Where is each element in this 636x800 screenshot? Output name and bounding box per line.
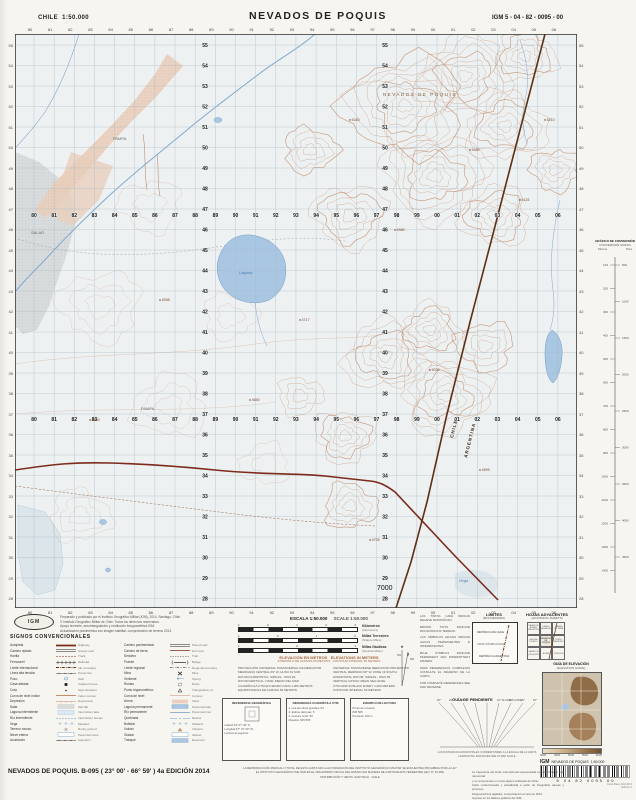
edge-northing: 52	[579, 104, 588, 109]
grid-label-northing: 37	[382, 412, 388, 418]
edge-easting: 01	[447, 27, 459, 32]
legend-label-en: Power line	[78, 671, 116, 675]
edge-easting: 95	[326, 27, 338, 32]
legend-label-es: Terreno rocoso	[10, 727, 54, 731]
barcode-scale: 1:50.000	[591, 760, 605, 765]
legend-symbol-well	[56, 676, 76, 681]
grid-label-northing: 36	[382, 432, 388, 438]
grid-label-northing: 49	[202, 166, 208, 172]
edge-northing: 35	[4, 453, 13, 458]
grid-label-easting: 85	[132, 417, 138, 423]
conversion-left-value: 300	[603, 310, 608, 314]
grid-label-easting: 06	[555, 213, 561, 219]
grid-label-easting: 90	[233, 213, 239, 219]
grid-label-easting: 96	[354, 417, 360, 423]
edge-northing: 44	[579, 268, 588, 273]
legend-symbol-rail	[56, 660, 76, 665]
legend-label-es: Depresión	[10, 699, 54, 703]
grid-label-northing: 32	[202, 514, 208, 520]
utm-box-line: Precisión 100 m	[353, 714, 407, 718]
edge-northing: 46	[4, 227, 13, 232]
pond-3	[106, 568, 111, 572]
grid-label-northing: 37	[202, 412, 208, 418]
edge-easting: 88	[185, 610, 197, 615]
scale-bar	[238, 648, 358, 653]
grid-label-northing: 43	[202, 289, 208, 295]
conversion-right-value: 1500	[622, 336, 629, 340]
igm-logo: IGM	[14, 614, 54, 630]
legend-symbol-contour	[170, 693, 190, 698]
conversion-right-value: 4500	[622, 555, 629, 559]
conversion-left-value: 700	[603, 404, 608, 408]
full-grid-label: 7000	[377, 585, 393, 592]
scale-title-en: SCALE 1:50.000	[334, 616, 368, 621]
scale-tick: 1	[238, 634, 240, 638]
legend-label-es: Ferrocarril	[10, 660, 54, 664]
legend-symbol-queb	[170, 716, 190, 721]
grid-label-easting: 05	[535, 213, 541, 219]
legend-symbol-road1	[170, 643, 190, 648]
legend-symbol-tri	[170, 688, 190, 693]
edge-northing: 28	[579, 596, 588, 601]
legend-symbol-bound2	[170, 665, 190, 670]
hojas-title-block: HOJAS ADYACENTES (ADJOINING SHEETS)	[522, 612, 572, 621]
grid-label-easting: 87	[172, 213, 178, 219]
legend-symbol-track	[170, 648, 190, 653]
spot-height: 5210	[547, 118, 555, 122]
grid-label-northing: 55	[382, 43, 388, 49]
grid-label-easting: 02	[475, 417, 481, 423]
legend-label-es: Acueducto	[10, 738, 54, 742]
scale-tick: 1	[354, 644, 356, 648]
legend-label-es: Límite regional	[124, 666, 168, 670]
edge-easting: 93	[286, 27, 298, 32]
sheet-code: IGM 5 - 04 - 82 - 0095 - 00	[492, 15, 563, 22]
edge-easting: 97	[367, 610, 379, 615]
declination-nm: NM	[410, 657, 414, 661]
edge-northing: 51	[4, 125, 13, 130]
grid-label-northing: 35	[202, 453, 208, 459]
slope-note: HORIZONTAL DISTANCES ARE AT MAP SCALE	[428, 755, 546, 759]
elevation-guide-thumbnail	[542, 672, 602, 746]
legend-label-es: Puente	[124, 660, 168, 664]
grid-label-easting: 93	[293, 417, 299, 423]
conversion-right-value: 1000	[622, 300, 629, 304]
utm-box-line: Lectura al segundo	[225, 731, 279, 735]
slope-label: 10°	[497, 698, 501, 702]
grid-label-northing: 45	[202, 248, 208, 254]
spot-height: 5340	[352, 118, 360, 122]
edge-easting: 84	[105, 610, 117, 615]
legend-symbol-sand	[170, 699, 190, 704]
footer-right-text: La trayectoria del límite internacional …	[472, 770, 564, 800]
edge-easting: 94	[306, 27, 318, 32]
legend-label-es: Cota	[10, 688, 54, 692]
elevation-bar-label: 4000	[540, 753, 546, 757]
footer-title: NEVADOS DE POQUIS. B-095 ( 23° 00' - 66°…	[8, 768, 209, 775]
utm-box-title: REFERENCIA CUADRÍCULA UTM	[289, 701, 343, 705]
grid-label-easting: 92	[273, 417, 279, 423]
grid-label-northing: 32	[382, 514, 388, 520]
scale-bar-label-en: (Nautical Miles)	[362, 649, 387, 653]
grid-label-northing: 40	[202, 350, 208, 356]
edge-northing: 28	[4, 596, 13, 601]
grid-label-easting: 04	[515, 213, 521, 219]
legend-label-es: Curva de nivel	[124, 694, 168, 698]
conversion-right-value: 2500	[622, 409, 629, 413]
edge-easting: 89	[205, 27, 217, 32]
legend-label-es: Salar	[10, 705, 54, 709]
marginal-note-line: BROWN TINTS INDICATE MOUNTAINOUS TERRAIN…	[420, 625, 470, 634]
legend-symbol-marsh	[56, 721, 76, 726]
limites-box: REPÚBLICA DE CHILE LÍMITE INTERNACIONAL …	[472, 622, 518, 664]
conversion-graph: GRÁFICO DE CONVERSIÓN CONVERSION GRAPH M…	[594, 240, 636, 604]
datum-note: EQUIDISTANCIA DE CURVAS 50 METROS	[238, 688, 325, 693]
elevation-bar-labels: 40004500500055006000	[540, 753, 602, 757]
grid-label-northing: 31	[382, 535, 388, 541]
edge-northing: 55	[4, 43, 13, 48]
edge-northing: 49	[579, 166, 588, 171]
legend-label-es: Quebrada	[124, 716, 168, 720]
conversion-right-value: 3000	[622, 446, 629, 450]
scale-tick: 0	[296, 644, 298, 648]
legend-label-es: Tranque	[124, 738, 168, 742]
legend-label-en: Trail	[192, 654, 230, 658]
grid-label-northing: 55	[202, 43, 208, 49]
utm-sample-diagram	[242, 706, 262, 722]
scale-tick: 1	[238, 644, 240, 648]
grid-label-northing: 28	[382, 596, 388, 602]
edge-easting: 97	[367, 27, 379, 32]
edge-northing: 31	[4, 535, 13, 540]
grid-label-easting: 86	[152, 213, 158, 219]
conversion-left-value: 800	[603, 428, 608, 432]
legend-label-es: Río permanente	[124, 710, 168, 714]
legend-label-es: Punto trigonométrico	[124, 688, 168, 692]
grid-label-easting: 02	[475, 213, 481, 219]
edge-northing: 49	[4, 166, 13, 171]
scale-bar-label: Millas Náuticas(Nautical Miles)	[362, 645, 387, 653]
limites-label: LÍMITE INTERNACIONAL	[477, 643, 505, 646]
grid-label-northing: 51	[382, 125, 388, 131]
place-label: SALAR	[31, 230, 44, 235]
edge-northing: 38	[579, 391, 588, 396]
legend-label-en: Track	[78, 654, 116, 658]
edge-easting: 98	[387, 27, 399, 32]
place-label: PAMPA	[113, 136, 127, 141]
interval-es: INTERVALO DE CURVAS 50 METROS	[278, 659, 331, 663]
legend-symbol-salar	[56, 704, 76, 709]
legend-symbol-road2	[56, 643, 76, 648]
grid-label-northing: 50	[202, 145, 208, 151]
edge-northing: 33	[579, 494, 588, 499]
elev-guide-title-block: GUÍA DE ELEVACIÓN (ELEVATION GUIDE)	[538, 662, 604, 670]
grid-label-northing: 42	[202, 309, 208, 315]
edge-easting: 82	[64, 610, 76, 615]
legend-symbol-lakeI	[56, 710, 76, 715]
scale-bar-col: 101	[238, 644, 358, 653]
grid-label-northing: 30	[382, 555, 388, 561]
grid-label-easting: 80	[31, 213, 37, 219]
utm-box: EJEMPLO DE LECTURAPunto de muestra845 50…	[350, 698, 409, 761]
grid-label-easting: 00	[434, 213, 440, 219]
legend-symbol-house	[56, 682, 76, 687]
legend-label-en: Dirt road	[192, 649, 230, 653]
grid-label-easting: 91	[253, 213, 259, 219]
edge-northing: 48	[4, 186, 13, 191]
grid-label-easting: 05	[535, 417, 541, 423]
spot-height: 4705	[372, 538, 380, 542]
slope-label: 30°	[449, 698, 453, 702]
legend-label-en: Perennial snow	[78, 733, 116, 737]
marginal-note-line: LAS TINTAS CAFÉ INDICAN RELIEVE MONTAÑOS…	[420, 614, 470, 623]
place-label: PAMPA	[141, 406, 155, 411]
grid-label-easting: 84	[112, 417, 118, 423]
legend-symbol-volc	[170, 727, 190, 732]
edge-easting: 92	[266, 27, 278, 32]
scale-tick: 0	[277, 634, 279, 638]
legend-label-en: Gravel road	[78, 649, 116, 653]
scale-bar	[238, 638, 358, 643]
conversion-left-value: 500	[603, 357, 608, 361]
grid-label-northing: 31	[202, 535, 208, 541]
map-canvas: CHILE ARGENTINA 808182838485868788899091…	[15, 34, 577, 608]
grid-label-northing: 54	[382, 63, 388, 69]
grid-label-northing: 46	[382, 227, 388, 233]
edge-northing: 48	[579, 186, 588, 191]
legend-label-es: Bofedal	[124, 722, 168, 726]
declination-diagram: ★ NG NM	[390, 642, 414, 692]
edge-northing: 43	[579, 289, 588, 294]
place-label: Laguna	[239, 270, 253, 275]
conversion-left-value: 1100	[602, 498, 609, 502]
edge-northing: 38	[4, 391, 13, 396]
legend-label-en: Index contour	[78, 694, 116, 698]
grid-label-northing: 44	[382, 268, 388, 274]
grid-label-easting: 96	[354, 213, 360, 219]
limites-subtitle: (BOUNDARIES)	[468, 617, 520, 621]
legend-label-es: Mina	[124, 671, 168, 675]
declination-ng: NG	[397, 653, 401, 657]
edge-northing: 33	[4, 494, 13, 499]
footer-right-line: Carta confeccionada y actualizada a part…	[472, 783, 564, 792]
legend-symbol-lake	[170, 704, 190, 709]
grid-label-northing: 52	[382, 104, 388, 110]
legend-label-en: Regional boundary	[192, 666, 230, 670]
grid-label-easting: 99	[414, 417, 420, 423]
grid-label-easting: 95	[333, 417, 339, 423]
credit-line: Actualización planimétrica con imagen sa…	[60, 629, 218, 634]
grid-label-northing: 29	[382, 576, 388, 582]
scale-tick: 0	[267, 623, 269, 627]
scale-bar-row: 10123Kilómetros(Kilometers)	[238, 623, 420, 632]
legend-label-es: Glaciar	[124, 733, 168, 737]
slope-label: 10°	[473, 698, 477, 702]
grid-label-easting: 90	[233, 417, 239, 423]
edge-northing: 50	[4, 145, 13, 150]
legend-symbol-contourI	[56, 693, 76, 698]
utm-box-line: Muestra: 845 505	[289, 718, 343, 722]
hojas-subtitle: (ADJOINING SHEETS)	[522, 617, 572, 621]
hojas-diagonal	[527, 622, 565, 660]
grid-label-easting: 06	[555, 417, 561, 423]
grid-label-northing: 34	[202, 473, 208, 479]
grid-label-northing: 33	[202, 494, 208, 500]
scale-tick: 2	[325, 623, 327, 627]
edge-easting: 91	[246, 27, 258, 32]
conversion-left-value: 200	[603, 287, 608, 291]
scale-tick: 3	[354, 623, 356, 627]
grid-label-northing: 51	[202, 125, 208, 131]
conversion-left-value: 1200	[601, 522, 608, 526]
legend-label-en: Paved road	[192, 643, 230, 647]
marginal-note-line: LOS SÍMBOLOS AZULES INDICAN AGUAS PERMAN…	[420, 635, 470, 648]
edge-northing: 36	[4, 432, 13, 437]
slope-label: 20°	[461, 698, 465, 702]
grid-label-northing: 48	[382, 186, 388, 192]
legend-label-en: Aqueduct	[78, 738, 116, 742]
scale-title-es: ESCALA 1:50.000	[290, 616, 327, 621]
legend-symbol-snow	[56, 732, 76, 737]
grid-label-easting: 98	[394, 213, 400, 219]
legend-symbol-snow	[170, 732, 190, 737]
barcode-name: NEVADOS DE POQUIS	[551, 760, 588, 765]
edge-easting: 95	[326, 610, 338, 615]
edge-easting: 87	[165, 27, 177, 32]
legend-label-en: Triangulation pt.	[192, 688, 230, 692]
legend-label-en: Rocky ground	[78, 727, 116, 731]
edge-northing: 34	[579, 473, 588, 478]
edge-easting: 96	[346, 27, 358, 32]
edge-easting: 99	[407, 610, 419, 615]
edge-northing: 39	[579, 371, 588, 376]
slope-label: 5°	[486, 698, 489, 702]
grid-label-northing: 30	[202, 555, 208, 561]
grid-label-northing: 48	[202, 186, 208, 192]
edge-northing: 42	[4, 309, 13, 314]
legend-symbol-power	[56, 738, 76, 743]
grid-label-easting: 94	[313, 213, 319, 219]
utm-box: REFERENCIA GEOGRÁFICALatitud 23° 07' 30"…	[222, 698, 281, 761]
grid-label-northing: 53	[202, 84, 208, 90]
scale-bar-col: 10123	[238, 623, 358, 632]
legend-symbol-power	[56, 671, 76, 676]
legend-title: SIGNOS CONVENCIONALES	[10, 634, 224, 641]
scale-bar-label-en: (Kilometers)	[362, 628, 380, 632]
spot-height: 4598	[162, 298, 170, 302]
credits-block: Preparado y publicado por el Instituto G…	[60, 615, 218, 634]
place-label: Vega	[459, 578, 469, 583]
barcode-org: IGM	[540, 759, 549, 765]
elevation-bar-label: 5000	[568, 753, 574, 757]
edge-easting: 03	[487, 27, 499, 32]
edge-northing: 32	[579, 514, 588, 519]
grid-label-northing: 38	[202, 391, 208, 397]
grid-label-northing: 34	[382, 473, 388, 479]
legend-label-es: Huella	[10, 654, 54, 658]
edge-easting: 88	[185, 27, 197, 32]
edge-northing: 42	[579, 309, 588, 314]
edge-northing: 45	[579, 248, 588, 253]
conversion-right-value: 4000	[622, 519, 629, 523]
edge-easting: 83	[84, 610, 96, 615]
igm-logo-text: IGM	[28, 619, 40, 625]
grid-label-easting: 94	[313, 417, 319, 423]
footer-center-text: LA REPRODUCCIÓN PARCIAL O TOTAL DE ESTA …	[232, 766, 468, 779]
conversion-left-value: 1300	[601, 545, 608, 549]
edge-easting: 80	[24, 27, 36, 32]
grid-label-northing: 39	[202, 371, 208, 377]
legend-symbol-bridge	[170, 660, 190, 665]
scale-bar-label: Millas Terrestres(Statute Miles)	[362, 634, 389, 642]
legend-label-en: Well	[78, 677, 116, 681]
spot-height: 5480	[472, 148, 480, 152]
legend-label-en: Mine	[192, 671, 230, 675]
edge-northing: 55	[579, 43, 588, 48]
edge-easting: 91	[246, 610, 258, 615]
grid-label-northing: 35	[382, 453, 388, 459]
grid-label-northing: 54	[202, 63, 208, 69]
grid-label-northing: 33	[382, 494, 388, 500]
edge-northing: 46	[579, 227, 588, 232]
legend-symbol-road1	[56, 648, 76, 653]
footer-center-line: DISTRIBUCIÓN Y VENTA: SANTIAGO - CHILE	[232, 775, 468, 779]
conversion-right-value: 2000	[622, 373, 629, 377]
edge-northing: 53	[579, 84, 588, 89]
conversion-left-value: 400	[603, 334, 608, 338]
edge-northing: 30	[579, 555, 588, 560]
slope-guide-fan: 45°30°20°10°5°10°20°30°45°	[432, 695, 542, 751]
map-area: CHILE ARGENTINA 808182838485868788899091…	[15, 34, 577, 608]
slope-guide-notes: LAS DISTANCIAS HORIZONTALES CORRESPONDEN…	[428, 751, 546, 758]
legend-label-es: Camino ripiado	[10, 649, 54, 653]
grid-label-easting: 84	[112, 213, 118, 219]
edge-northing: 41	[579, 330, 588, 335]
grid-label-northing: 43	[382, 289, 388, 295]
grid-label-northing: 41	[382, 330, 388, 336]
edge-easting: 04	[508, 27, 520, 32]
edge-northing: 32	[4, 514, 13, 519]
conversion-left-value: 1000	[601, 475, 608, 479]
scale-bar-label-es: Millas Náuticas	[362, 645, 387, 649]
legend-symbol-trail	[170, 654, 190, 659]
edge-easting: 00	[427, 27, 439, 32]
legend-symbol-bound	[56, 665, 76, 670]
grid-label-easting: 01	[454, 417, 460, 423]
legend-label-en: Bridge	[192, 660, 230, 664]
edge-northing: 45	[4, 248, 13, 253]
edge-northing: 29	[579, 576, 588, 581]
grid-label-easting: 98	[394, 417, 400, 423]
grid-label-northing: 36	[202, 432, 208, 438]
edge-easting: 82	[64, 27, 76, 32]
scale-bar-label-en: (Statute Miles)	[362, 638, 389, 642]
grid-label-northing: 52	[202, 104, 208, 110]
edge-easting: 89	[205, 610, 217, 615]
legend-label-es: Límite internacional	[10, 666, 54, 670]
conversion-left-value: 1400	[601, 569, 608, 573]
legend-symbol-water	[170, 710, 190, 715]
edge-northing: 40	[579, 350, 588, 355]
edge-northing: 39	[4, 371, 13, 376]
grid-label-northing: 49	[382, 166, 388, 172]
legend-label-es: Arena	[124, 699, 168, 703]
grid-label-easting: 82	[72, 417, 78, 423]
grid-label-easting: 89	[213, 213, 219, 219]
grid-label-northing: 42	[382, 309, 388, 315]
legend-item: TranqueReservoir	[124, 738, 230, 744]
spot-height: 4650	[252, 398, 260, 402]
